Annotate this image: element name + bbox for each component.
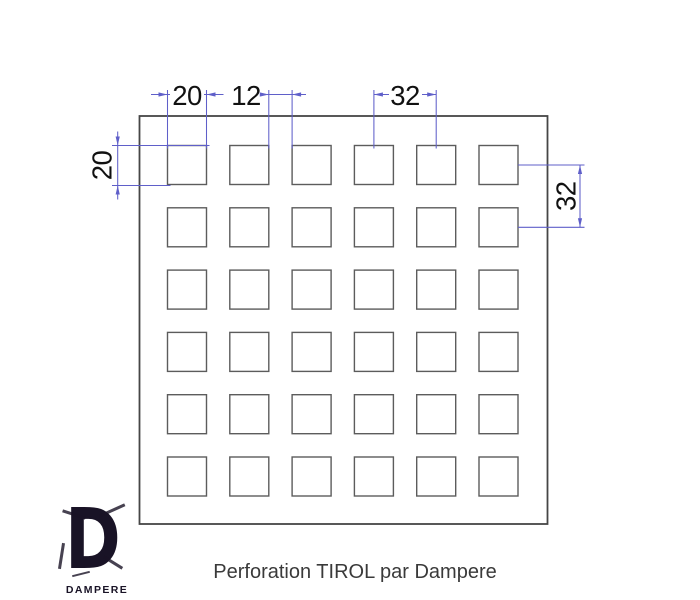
perforation-hole <box>417 395 456 434</box>
perforation-hole <box>292 146 331 185</box>
perforation-hole <box>417 270 456 309</box>
dim-arrow <box>374 92 383 96</box>
perforation-hole <box>479 457 518 496</box>
perforation-hole <box>292 208 331 247</box>
perforation-hole <box>479 395 518 434</box>
perforation-hole <box>479 146 518 185</box>
perforation-hole <box>292 270 331 309</box>
perforation-hole <box>230 332 269 371</box>
dampere-logo: D DAMPERE <box>58 503 136 597</box>
dim-label-pitch-horizontal: 32 <box>390 80 420 111</box>
perforation-hole <box>479 270 518 309</box>
perforation-hole <box>354 270 393 309</box>
perforation-hole <box>230 457 269 496</box>
dim-label-pitch-vertical: 32 <box>551 181 582 211</box>
dim-label-hole-width: 20 <box>172 80 202 111</box>
dim-arrow <box>292 92 301 96</box>
perforation-hole <box>292 395 331 434</box>
perforation-hole <box>354 208 393 247</box>
drawing-sheet: 20 12 32 20 <box>0 0 700 600</box>
perforation-hole <box>230 146 269 185</box>
perforation-hole <box>168 208 207 247</box>
dim-arrow <box>427 92 436 96</box>
perforation-hole <box>417 332 456 371</box>
dim-arrow <box>578 218 582 227</box>
perforation-hole <box>479 208 518 247</box>
logo-wordmark: DAMPERE <box>58 584 136 596</box>
dim-label-hole-height: 20 <box>87 151 118 181</box>
perforation-hole <box>230 208 269 247</box>
perforation-hole <box>230 270 269 309</box>
dim-arrow <box>207 92 216 96</box>
dim-arrow <box>159 92 168 96</box>
dim-arrow <box>116 186 120 195</box>
perforation-hole <box>417 457 456 496</box>
perforation-hole <box>292 457 331 496</box>
perforation-hole <box>230 395 269 434</box>
perforation-hole <box>354 457 393 496</box>
perforation-hole <box>354 146 393 185</box>
dim-arrow <box>578 165 582 174</box>
perforation-hole <box>168 332 207 371</box>
perforation-hole <box>168 146 207 185</box>
drawing-caption: Perforation TIROL par Dampere <box>140 561 570 584</box>
perforation-hole <box>417 208 456 247</box>
perforation-hole <box>168 395 207 434</box>
perforation-hole <box>168 270 207 309</box>
perforation-hole <box>417 146 456 185</box>
dim-arrow <box>260 92 269 96</box>
perforation-hole <box>354 332 393 371</box>
perforation-hole <box>479 332 518 371</box>
logo-texture-mark <box>58 543 65 569</box>
perforation-hole <box>168 457 207 496</box>
perforation-hole <box>354 395 393 434</box>
dim-label-gap: 12 <box>231 80 261 111</box>
perforation-hole <box>292 332 331 371</box>
dim-arrow <box>116 137 120 146</box>
